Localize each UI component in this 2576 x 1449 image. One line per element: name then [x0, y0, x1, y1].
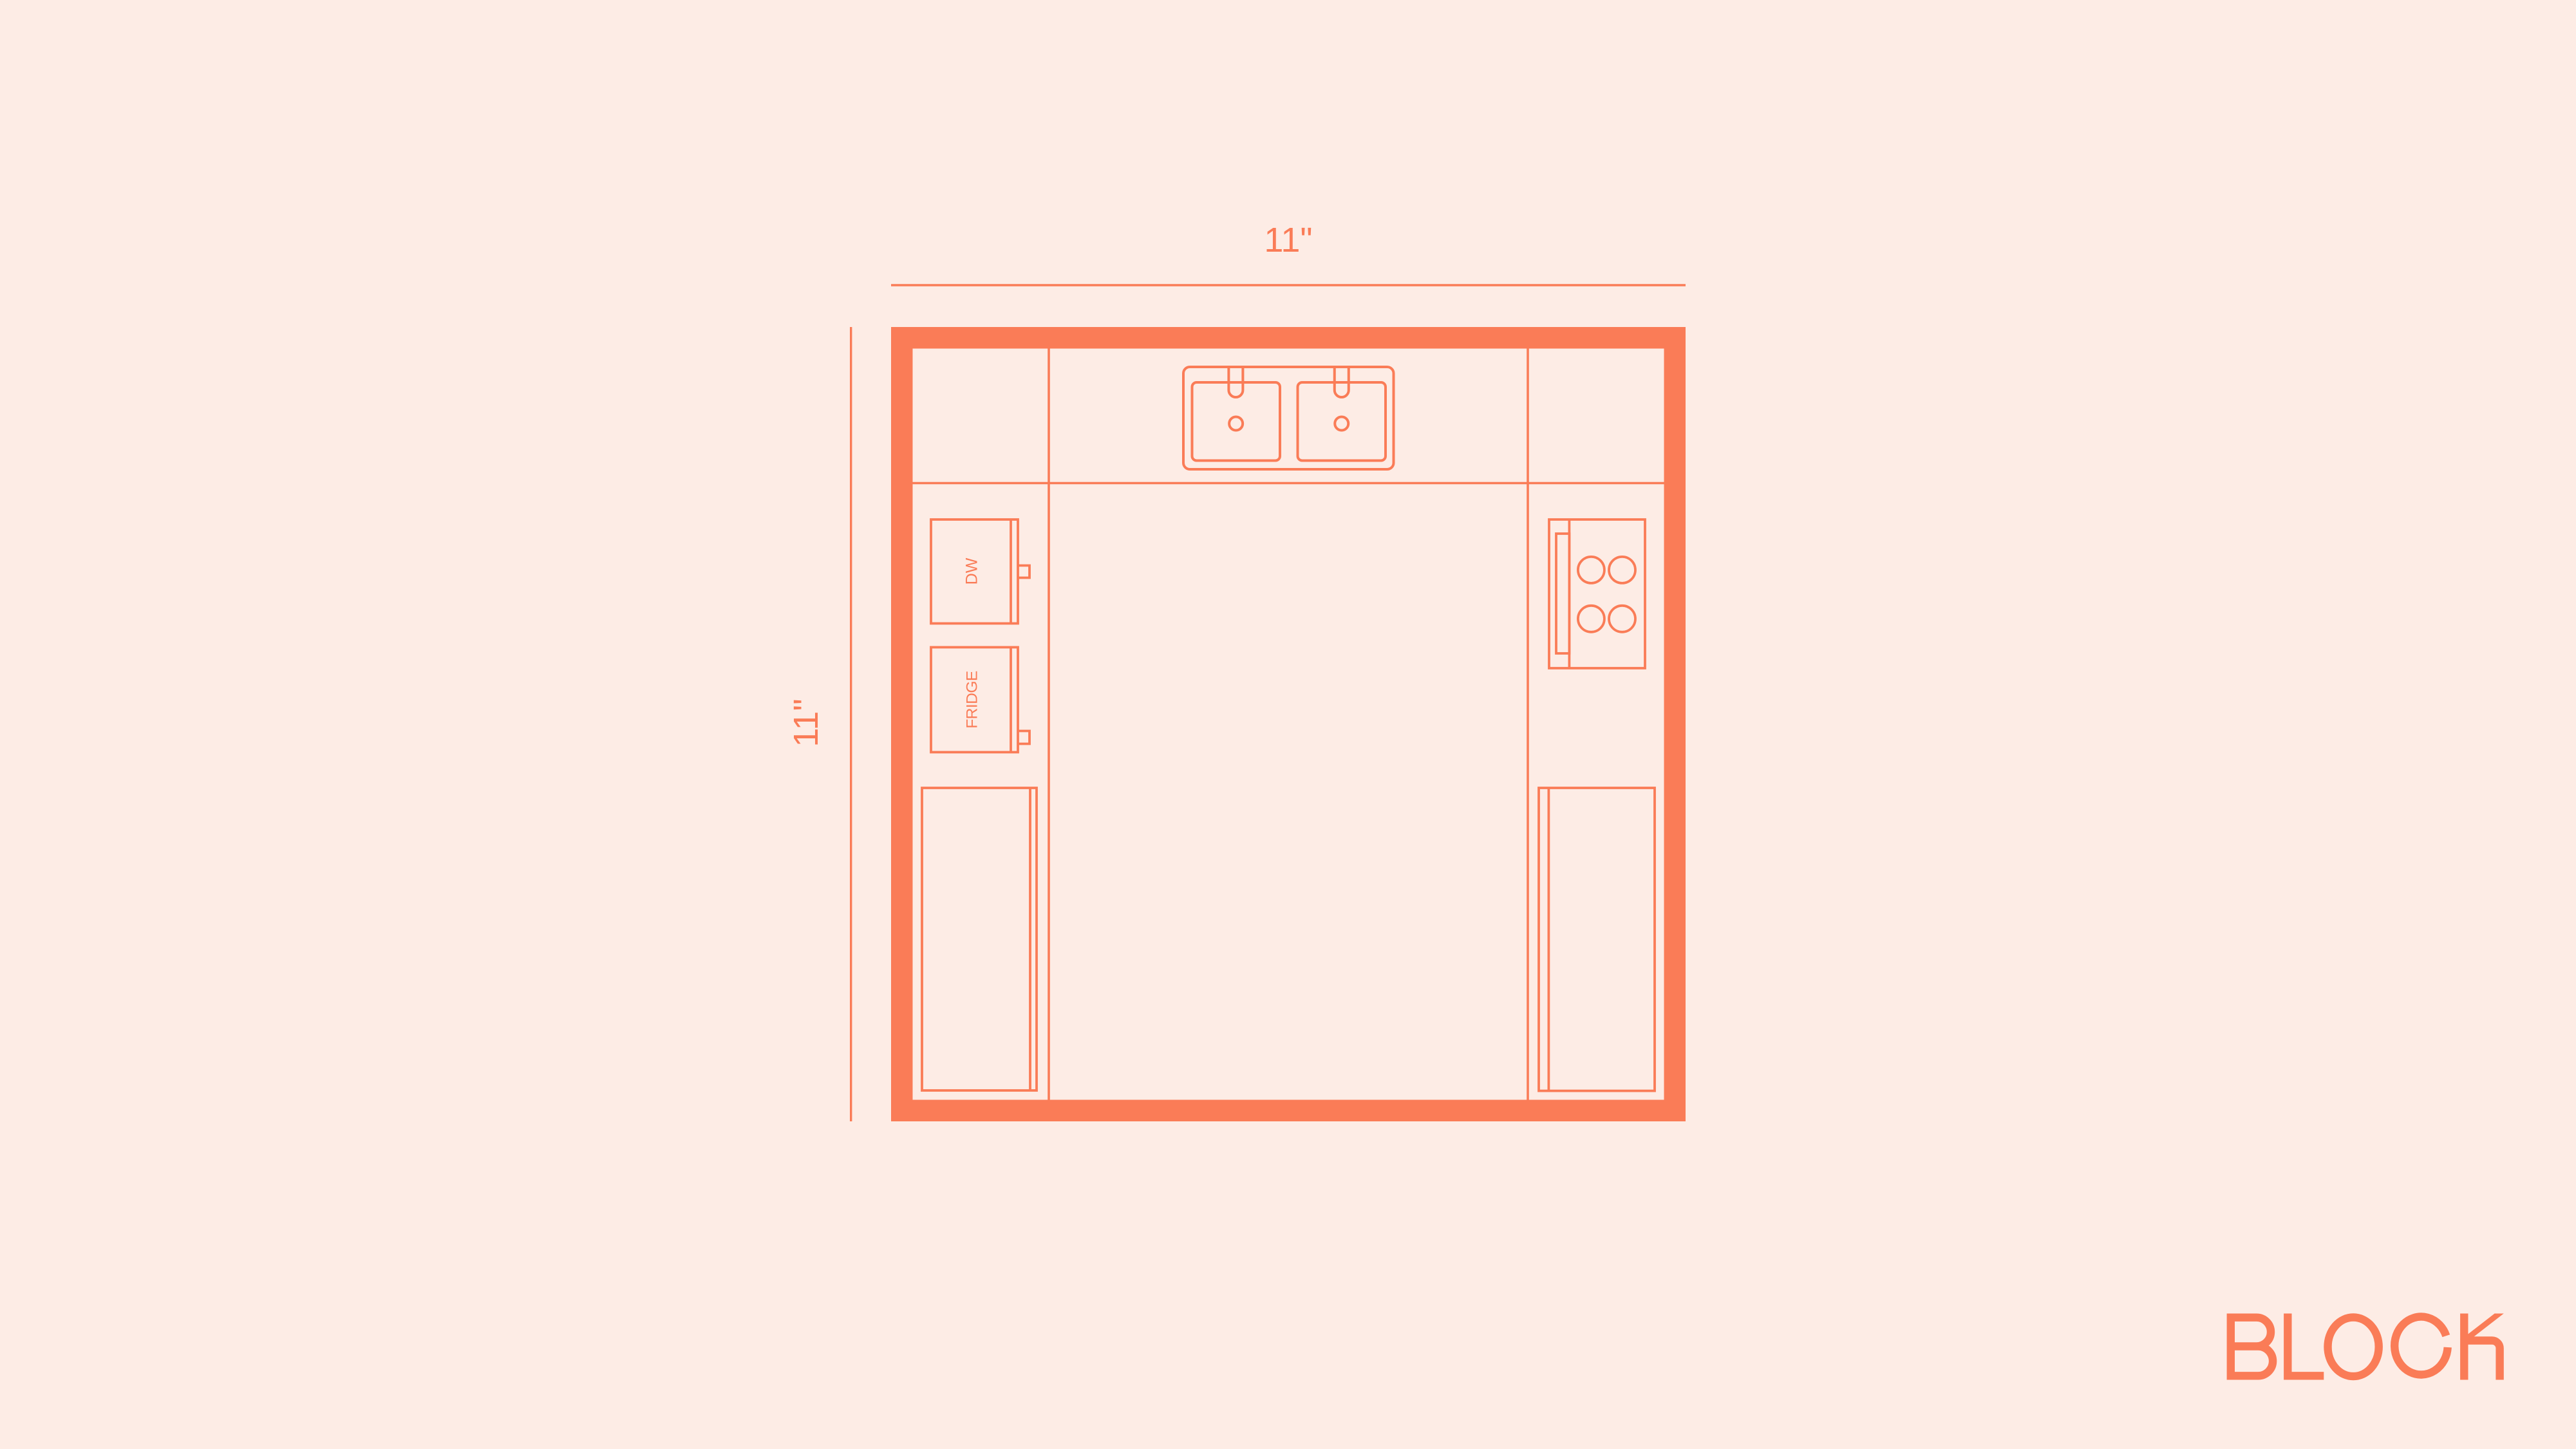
svg-text:FRIDGE: FRIDGE	[964, 671, 981, 729]
svg-text:DW: DW	[963, 557, 981, 584]
svg-text:11": 11"	[1264, 221, 1312, 259]
svg-text:11": 11"	[787, 698, 825, 747]
